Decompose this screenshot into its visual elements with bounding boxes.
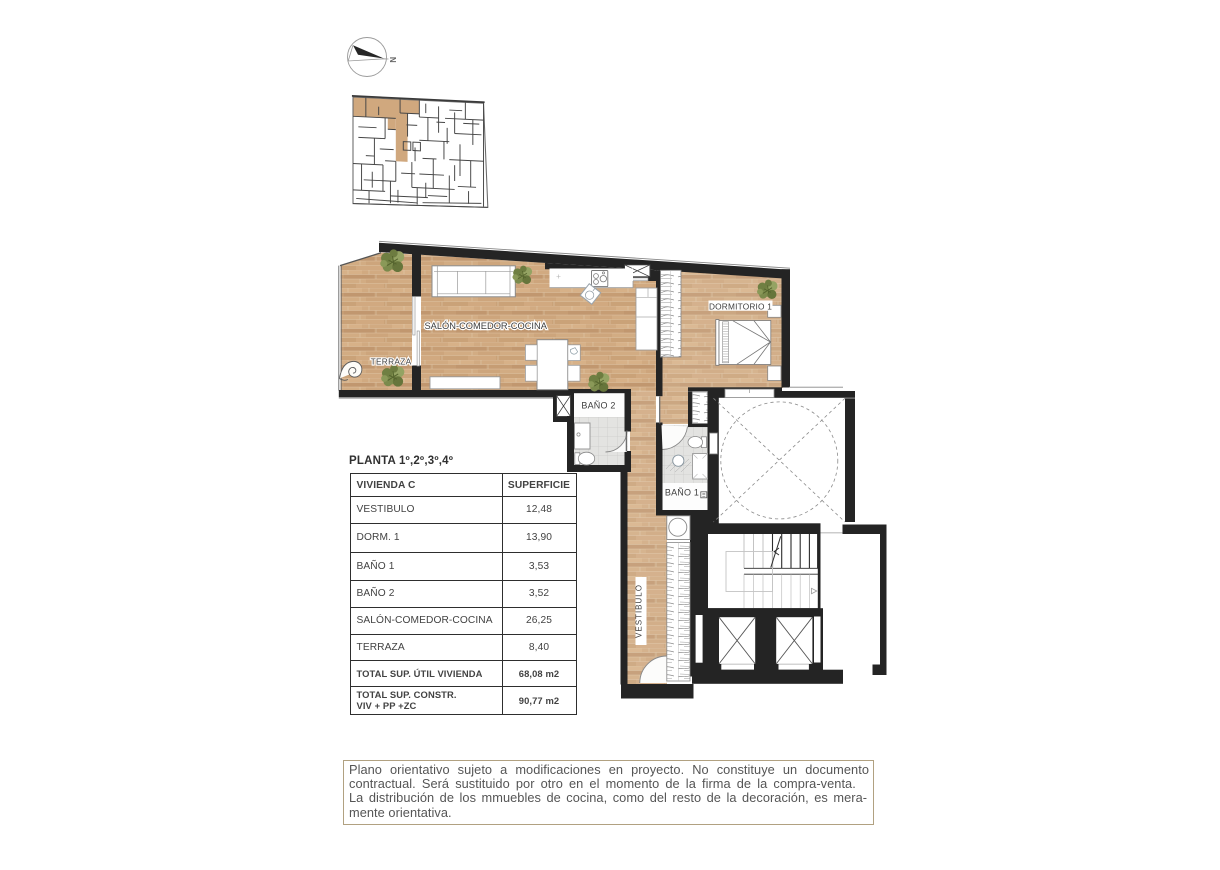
svg-text:BAÑO 1: BAÑO 1 xyxy=(665,487,699,497)
svg-text:BAÑO 2: BAÑO 2 xyxy=(581,400,615,410)
svg-text:N: N xyxy=(388,57,397,63)
svg-text:DORMITORIO 1: DORMITORIO 1 xyxy=(709,302,772,312)
svg-text:SALÓN-COMEDOR-COCINA: SALÓN-COMEDOR-COCINA xyxy=(424,321,547,331)
svg-text:TERRAZA: TERRAZA xyxy=(371,356,412,366)
svg-text:VESTIBULO: VESTIBULO xyxy=(635,584,644,638)
